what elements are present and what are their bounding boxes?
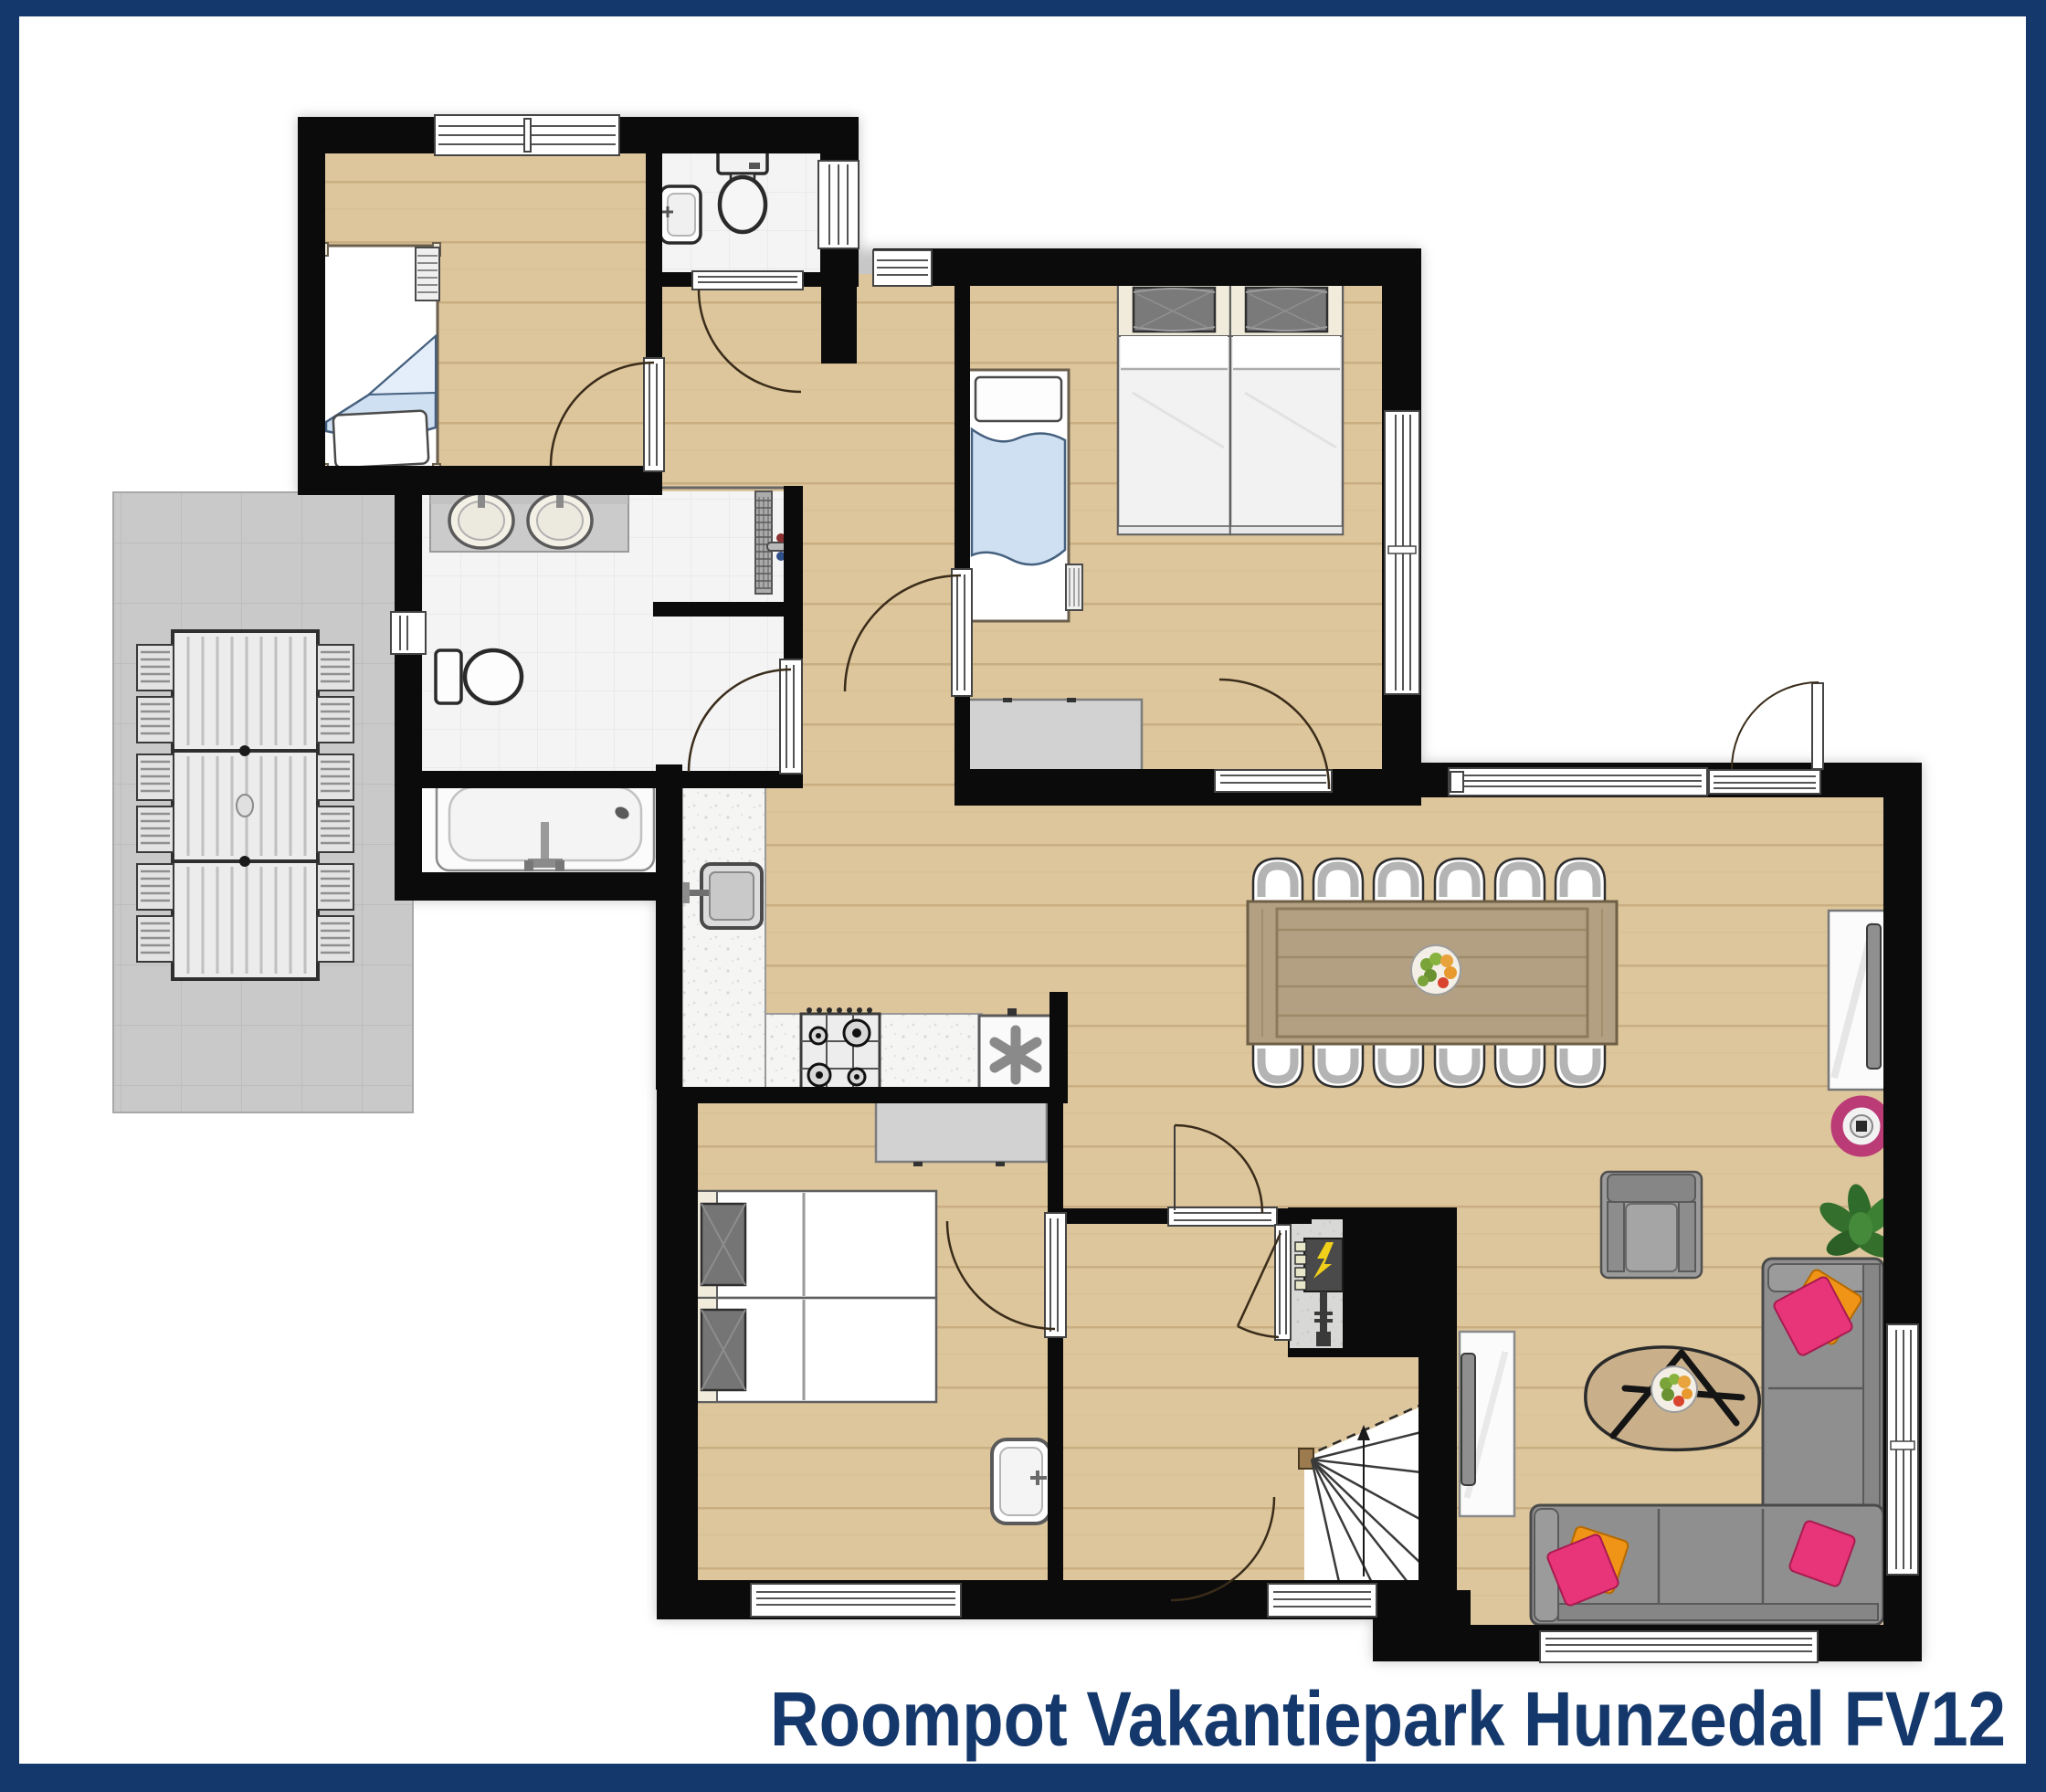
svg-text:Roompot Vakantiepark Hunzedal: Roompot Vakantiepark Hunzedal FV12 — [770, 1676, 2006, 1762]
